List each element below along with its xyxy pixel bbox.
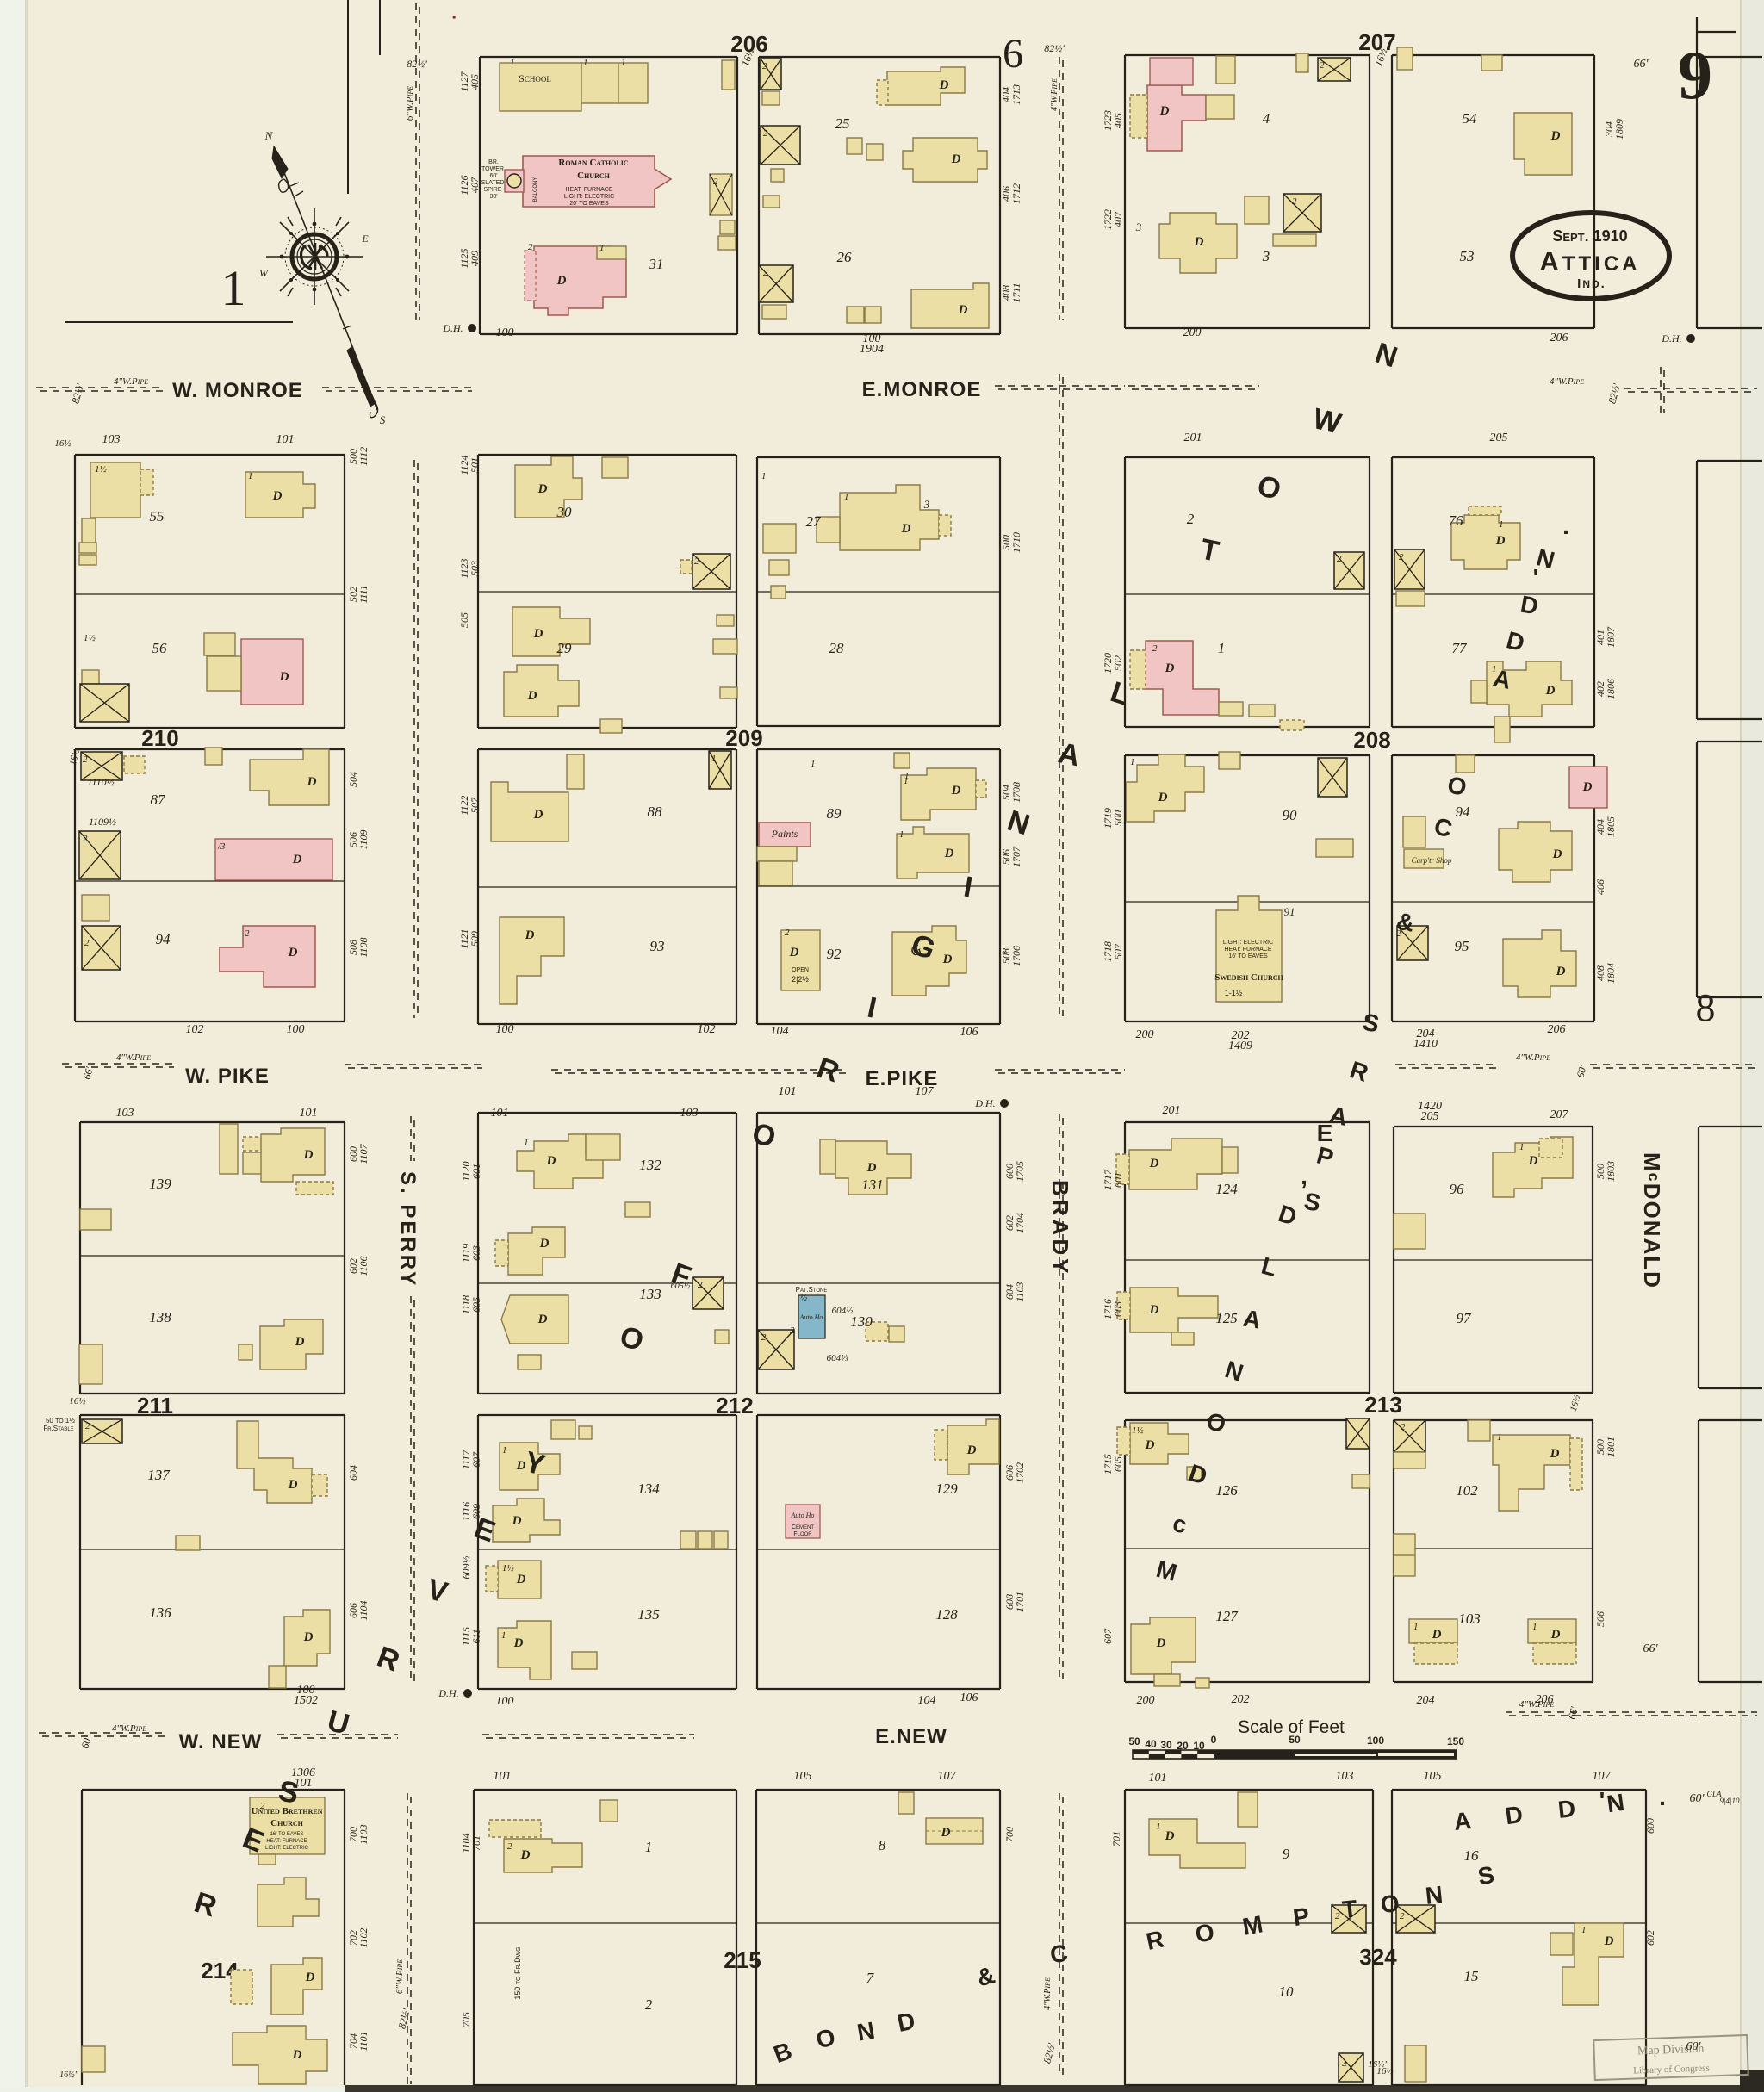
svg-text:D: D xyxy=(1149,1157,1159,1170)
svg-text:40: 40 xyxy=(1145,1738,1157,1750)
svg-text:D: D xyxy=(525,928,535,942)
svg-text:D: D xyxy=(279,670,289,684)
svg-text:D: D xyxy=(512,1514,522,1528)
svg-text:D: D xyxy=(789,946,799,959)
svg-text:1712: 1712 xyxy=(1010,183,1022,204)
svg-text:3: 3 xyxy=(1262,248,1270,264)
svg-text:D: D xyxy=(951,784,961,798)
svg-text:94: 94 xyxy=(1456,804,1471,820)
svg-text:701: 701 xyxy=(470,1835,482,1851)
svg-text:D: D xyxy=(288,946,298,959)
svg-text:95: 95 xyxy=(1455,938,1469,954)
svg-text:D: D xyxy=(292,853,302,866)
svg-text:87: 87 xyxy=(151,791,167,808)
svg-text:212: 212 xyxy=(716,1393,753,1418)
svg-text:130: 130 xyxy=(850,1313,873,1330)
svg-text:10: 10 xyxy=(1279,1983,1295,2000)
svg-text:206: 206 xyxy=(1550,332,1568,345)
svg-text:25: 25 xyxy=(835,115,850,132)
svg-text:1: 1 xyxy=(501,1630,506,1641)
svg-text:66': 66' xyxy=(1643,1642,1659,1655)
svg-text:E.MONROE: E.MONROE xyxy=(862,378,982,401)
svg-text:1: 1 xyxy=(1499,519,1504,530)
svg-text:6"W.PIPE: 6"W.PIPE xyxy=(394,1959,405,1994)
svg-text:W: W xyxy=(259,267,269,279)
svg-text:W. PIKE: W. PIKE xyxy=(185,1065,270,1088)
svg-text:1: 1 xyxy=(599,243,605,253)
svg-text:1410: 1410 xyxy=(1413,1038,1438,1051)
svg-text:205: 205 xyxy=(1490,431,1508,444)
svg-text:200: 200 xyxy=(1183,326,1202,339)
svg-text:HEAT: FURNACE: HEAT: FURNACE xyxy=(565,187,612,193)
svg-text:1706: 1706 xyxy=(1010,946,1022,966)
svg-text:609: 609 xyxy=(470,1504,482,1519)
svg-text:211: 211 xyxy=(137,1393,173,1418)
svg-text:4: 4 xyxy=(1263,110,1270,127)
svg-text:1804: 1804 xyxy=(1605,963,1617,984)
svg-text:406: 406 xyxy=(1594,879,1606,895)
svg-text:■: ■ xyxy=(452,16,456,21)
svg-text:2|2½: 2|2½ xyxy=(792,975,809,984)
svg-text:LIGHT: ELECTRIC: LIGHT: ELECTRIC xyxy=(265,1846,309,1851)
svg-text:W. NEW: W. NEW xyxy=(179,1730,263,1754)
svg-text:16' TO EAVES: 16' TO EAVES xyxy=(270,1832,304,1837)
svg-text:2: 2 xyxy=(698,1280,703,1290)
svg-text:1102: 1102 xyxy=(357,1927,370,1947)
svg-text:16½: 16½ xyxy=(54,438,71,449)
svg-text:1: 1 xyxy=(1218,640,1226,656)
svg-text:605: 605 xyxy=(1112,1456,1124,1472)
svg-text:1103: 1103 xyxy=(1014,1282,1026,1301)
svg-text:9|4|10: 9|4|10 xyxy=(1720,1797,1740,1805)
svg-text:77: 77 xyxy=(1452,640,1469,656)
svg-text:D: D xyxy=(1495,534,1506,548)
svg-text:1: 1 xyxy=(711,754,717,764)
svg-text:D: D xyxy=(303,1148,314,1162)
svg-text:1107: 1107 xyxy=(357,1143,370,1164)
svg-text:1: 1 xyxy=(844,492,849,502)
svg-text:82½': 82½' xyxy=(1044,42,1065,54)
svg-text:103: 103 xyxy=(102,433,121,446)
svg-text:2: 2 xyxy=(645,1996,653,2013)
svg-text:66': 66' xyxy=(1634,58,1649,71)
svg-text:76: 76 xyxy=(1449,512,1464,529)
svg-text:101: 101 xyxy=(300,1107,318,1120)
svg-text:1: 1 xyxy=(621,58,626,68)
svg-text:1805: 1805 xyxy=(1605,816,1617,837)
svg-text:60': 60' xyxy=(489,173,497,179)
svg-text:50: 50 xyxy=(1289,1734,1301,1746)
svg-text:29: 29 xyxy=(557,640,573,656)
svg-text:91: 91 xyxy=(1284,905,1295,918)
svg-text:N: N xyxy=(1424,1881,1444,1909)
svg-text:136: 136 xyxy=(149,1605,171,1621)
svg-text:1: 1 xyxy=(583,58,588,68)
svg-text:2: 2 xyxy=(260,1801,265,1811)
svg-text:26: 26 xyxy=(837,249,853,265)
svg-text:S: S xyxy=(380,413,386,426)
svg-text:55: 55 xyxy=(150,508,165,525)
svg-text:1: 1 xyxy=(502,1445,507,1456)
svg-text:100: 100 xyxy=(287,1023,305,1036)
svg-text:701: 701 xyxy=(1110,1831,1122,1847)
svg-text:4"W.PIPE: 4"W.PIPE xyxy=(114,376,148,387)
svg-text:2: 2 xyxy=(1292,196,1297,207)
svg-text:601: 601 xyxy=(470,1164,482,1179)
svg-text:1½: 1½ xyxy=(1132,1425,1144,1436)
svg-text:CHURCH: CHURCH xyxy=(270,1818,304,1828)
svg-text:102: 102 xyxy=(186,1023,204,1036)
svg-text:94: 94 xyxy=(156,931,171,947)
svg-text:D: D xyxy=(537,1313,548,1326)
svg-text:1111: 1111 xyxy=(357,585,370,603)
svg-text:2: 2 xyxy=(790,1325,795,1336)
svg-text:4"W.PIPE: 4"W.PIPE xyxy=(1519,1699,1554,1710)
svg-text:1801: 1801 xyxy=(1605,1437,1617,1457)
svg-text:31: 31 xyxy=(649,256,664,272)
svg-text:202: 202 xyxy=(1232,1693,1250,1706)
svg-text:16' TO EAVES: 16' TO EAVES xyxy=(1228,953,1268,959)
svg-text:405: 405 xyxy=(469,74,481,90)
svg-text:1109: 1109 xyxy=(357,829,370,849)
svg-text:16½": 16½" xyxy=(59,2070,79,2080)
svg-text:D: D xyxy=(1545,684,1556,698)
svg-text:210: 210 xyxy=(141,725,178,751)
svg-text:407: 407 xyxy=(469,177,481,193)
svg-text:D: D xyxy=(958,303,968,317)
svg-text:54: 54 xyxy=(1463,110,1478,127)
svg-text:602: 602 xyxy=(1644,1930,1656,1946)
svg-text:1: 1 xyxy=(811,759,816,769)
svg-text:138: 138 xyxy=(149,1309,171,1325)
svg-text:604: 604 xyxy=(347,1465,359,1481)
svg-text:1904: 1904 xyxy=(860,343,884,356)
svg-text:2: 2 xyxy=(1187,511,1195,527)
svg-text:503: 503 xyxy=(469,561,481,576)
svg-text:209: 209 xyxy=(725,725,762,751)
svg-text:107: 107 xyxy=(1593,1770,1612,1783)
svg-text:FLOOR: FLOOR xyxy=(793,1531,812,1537)
svg-text:LIGHT: ELECTRIC: LIGHT: ELECTRIC xyxy=(564,194,614,200)
svg-text:1112: 1112 xyxy=(357,447,370,466)
svg-text:2: 2 xyxy=(1337,554,1342,564)
svg-text:Auto Ho: Auto Ho xyxy=(799,1313,823,1321)
svg-text:215: 215 xyxy=(724,1947,761,1973)
svg-text:92: 92 xyxy=(827,946,842,962)
svg-text:56: 56 xyxy=(152,640,168,656)
svg-text:D: D xyxy=(866,1161,877,1175)
svg-text:2: 2 xyxy=(84,938,90,948)
svg-text:1½: 1½ xyxy=(84,633,96,643)
svg-text:107: 107 xyxy=(938,1770,957,1783)
svg-text:1: 1 xyxy=(1130,757,1135,767)
svg-text:HEAT: FURNACE: HEAT: FURNACE xyxy=(266,1839,307,1844)
svg-text:200: 200 xyxy=(1137,1694,1155,1707)
svg-text:201: 201 xyxy=(1184,431,1202,444)
svg-text:102: 102 xyxy=(1456,1482,1478,1499)
svg-text:1809: 1809 xyxy=(1613,119,1625,140)
svg-text:1: 1 xyxy=(899,829,904,840)
svg-text:1: 1 xyxy=(1413,1622,1419,1632)
svg-text:.: . xyxy=(1562,512,1569,539)
svg-text:88: 88 xyxy=(648,804,663,820)
svg-text:137: 137 xyxy=(147,1467,171,1483)
svg-text:D: D xyxy=(1504,1801,1525,1830)
svg-text:504: 504 xyxy=(347,772,359,787)
svg-text:206: 206 xyxy=(1548,1023,1566,1036)
svg-text:D: D xyxy=(288,1478,298,1492)
svg-text:101: 101 xyxy=(276,433,295,446)
svg-text:82½': 82½' xyxy=(407,58,427,70)
svg-text:D: D xyxy=(513,1636,524,1650)
svg-text:30': 30' xyxy=(489,194,497,200)
svg-text:506: 506 xyxy=(1594,1611,1606,1627)
svg-text:.: . xyxy=(1659,1784,1666,1810)
svg-text:2: 2 xyxy=(761,1332,767,1343)
svg-text:Paints: Paints xyxy=(771,828,798,840)
svg-text:D: D xyxy=(1604,1934,1614,1948)
svg-text:60': 60' xyxy=(1690,1792,1705,1805)
svg-text:D: D xyxy=(305,1971,315,1984)
svg-text:1704: 1704 xyxy=(1014,1213,1026,1233)
svg-text:100: 100 xyxy=(1367,1735,1384,1747)
svg-text:2: 2 xyxy=(1399,552,1404,562)
svg-text:603: 603 xyxy=(470,1245,482,1261)
svg-text:2: 2 xyxy=(83,754,88,765)
svg-text:601: 601 xyxy=(1112,1172,1124,1188)
svg-text:D.H.: D.H. xyxy=(438,1687,458,1699)
svg-text:205: 205 xyxy=(1421,1110,1439,1123)
svg-text:30: 30 xyxy=(556,504,573,520)
svg-text:150: 150 xyxy=(1447,1735,1464,1747)
svg-text:BRADY: BRADY xyxy=(1047,1180,1073,1276)
svg-text:D: D xyxy=(951,152,961,166)
svg-text:104: 104 xyxy=(771,1025,789,1038)
svg-text:97: 97 xyxy=(1457,1310,1473,1326)
svg-text:4"W.PIPE: 4"W.PIPE xyxy=(1550,376,1584,387)
svg-text:D: D xyxy=(527,689,537,703)
svg-text:107: 107 xyxy=(916,1085,935,1098)
svg-text:8: 8 xyxy=(1696,985,1716,1029)
svg-text:1: 1 xyxy=(524,1138,529,1148)
svg-text:N: N xyxy=(1606,1789,1626,1818)
svg-text:101: 101 xyxy=(295,1777,313,1790)
svg-text:1-1½: 1-1½ xyxy=(1225,989,1243,997)
svg-text:2: 2 xyxy=(507,1841,512,1852)
svg-text:D: D xyxy=(1165,1829,1175,1843)
svg-text:D: D xyxy=(1552,847,1562,861)
svg-text:1109½: 1109½ xyxy=(89,816,116,828)
svg-text:D: D xyxy=(537,482,548,496)
svg-text:9: 9 xyxy=(1678,38,1712,114)
svg-text:405: 405 xyxy=(1112,113,1124,128)
svg-text:16½": 16½" xyxy=(1368,2059,1388,2070)
svg-text:132: 132 xyxy=(639,1157,661,1173)
svg-text:D: D xyxy=(272,489,283,503)
svg-text:100: 100 xyxy=(496,1695,514,1708)
svg-text:2: 2 xyxy=(763,268,768,278)
svg-text:60': 60' xyxy=(1686,2040,1702,2053)
svg-text:4"W.PIPE: 4"W.PIPE xyxy=(116,1052,151,1063)
svg-text:BR.: BR. xyxy=(488,159,499,165)
svg-text:607: 607 xyxy=(1102,1628,1114,1644)
svg-text:D: D xyxy=(303,1630,314,1644)
svg-text:1707: 1707 xyxy=(1010,846,1022,867)
svg-text:D: D xyxy=(939,78,949,92)
svg-text:2: 2 xyxy=(1320,60,1325,71)
svg-text:1: 1 xyxy=(221,260,246,316)
svg-text:S. PERRY: S. PERRY xyxy=(396,1171,419,1288)
svg-text:103: 103 xyxy=(1458,1611,1481,1627)
svg-text:106: 106 xyxy=(960,1026,978,1039)
svg-text:1110½: 1110½ xyxy=(87,776,114,788)
svg-text:2: 2 xyxy=(1152,643,1158,654)
svg-text:': ' xyxy=(1599,1787,1606,1814)
svg-text:103: 103 xyxy=(116,1107,134,1120)
svg-text:1101: 1101 xyxy=(357,2031,370,2051)
svg-text:W. MONROE: W. MONROE xyxy=(172,379,303,402)
svg-text:1: 1 xyxy=(1497,1432,1502,1443)
svg-text:D: D xyxy=(1556,965,1566,978)
svg-text:BALCONY: BALCONY xyxy=(533,177,538,202)
svg-text:D: D xyxy=(1156,1636,1166,1650)
svg-text:139: 139 xyxy=(149,1176,171,1192)
svg-text:2: 2 xyxy=(83,834,88,844)
svg-text:LIGHT: ELECTRIC: LIGHT: ELECTRIC xyxy=(1223,940,1273,946)
svg-text:100: 100 xyxy=(496,1023,514,1036)
svg-text:D: D xyxy=(1556,1795,1576,1823)
svg-text:D: D xyxy=(556,274,567,288)
svg-text:93: 93 xyxy=(650,938,665,954)
svg-text:4"W.PIPE: 4"W.PIPE xyxy=(1516,1052,1550,1063)
svg-text:604⅓: 604⅓ xyxy=(827,1353,849,1363)
svg-text:4"W.PIPE: 4"W.PIPE xyxy=(1043,1977,1053,2010)
svg-text:102: 102 xyxy=(698,1023,716,1036)
svg-text:N: N xyxy=(264,129,274,142)
svg-text:324: 324 xyxy=(1359,1944,1397,1970)
svg-text:D: D xyxy=(1158,791,1168,804)
svg-text:6"W.PIPE: 6"W.PIPE xyxy=(405,86,415,121)
svg-text:O: O xyxy=(1194,1919,1216,1948)
svg-text:2: 2 xyxy=(1401,1422,1406,1432)
svg-text:D: D xyxy=(533,808,543,822)
svg-text:1701: 1701 xyxy=(1014,1592,1026,1612)
svg-text:O: O xyxy=(1379,1890,1401,1919)
svg-text:28: 28 xyxy=(829,640,845,656)
svg-text:CHURCH: CHURCH xyxy=(577,171,611,181)
svg-text:600: 600 xyxy=(1644,1818,1656,1834)
svg-text:1708: 1708 xyxy=(1010,782,1022,803)
svg-text:8: 8 xyxy=(879,1837,886,1853)
svg-text:D: D xyxy=(1165,661,1175,675)
svg-text:1710: 1710 xyxy=(1010,532,1022,553)
svg-text:D: D xyxy=(1159,104,1170,118)
svg-text:D: D xyxy=(1528,1154,1538,1168)
svg-text:SCHOOL: SCHOOL xyxy=(519,72,551,84)
svg-text:16½: 16½ xyxy=(69,1396,85,1406)
svg-text:ROMAN CATHOLIC: ROMAN CATHOLIC xyxy=(558,158,628,168)
svg-text:1: 1 xyxy=(904,776,909,786)
svg-text:2: 2 xyxy=(785,928,790,938)
svg-text:129: 129 xyxy=(935,1481,958,1497)
svg-text:103: 103 xyxy=(1336,1770,1354,1783)
svg-text:603: 603 xyxy=(1112,1301,1124,1317)
svg-text:106: 106 xyxy=(960,1692,978,1704)
svg-text:4"W.PIPE: 4"W.PIPE xyxy=(112,1723,146,1734)
svg-text:2: 2 xyxy=(1335,1911,1340,1921)
svg-text:700: 700 xyxy=(1003,1827,1016,1842)
svg-text:2: 2 xyxy=(713,177,718,187)
svg-text:1705: 1705 xyxy=(1014,1161,1026,1182)
svg-text:D: D xyxy=(520,1848,531,1862)
svg-text:101: 101 xyxy=(1149,1772,1167,1785)
svg-text:SLATED: SLATED xyxy=(481,180,505,186)
svg-text:,: , xyxy=(1301,1163,1307,1189)
svg-text:2: 2 xyxy=(85,1421,90,1431)
svg-text:15: 15 xyxy=(1464,1968,1479,1984)
svg-text:16: 16 xyxy=(1464,1847,1480,1864)
svg-text:D.H.: D.H. xyxy=(974,1097,995,1109)
svg-text:A: A xyxy=(1452,1807,1472,1835)
svg-text:1106: 1106 xyxy=(357,1256,370,1276)
svg-text:D: D xyxy=(901,522,911,536)
svg-text:53: 53 xyxy=(1460,248,1475,264)
svg-text:0: 0 xyxy=(1211,1734,1217,1746)
svg-text:500: 500 xyxy=(1112,810,1124,826)
svg-text:124: 124 xyxy=(1215,1181,1238,1197)
svg-text:D: D xyxy=(307,775,317,789)
svg-text:101: 101 xyxy=(491,1107,509,1120)
svg-text:D: D xyxy=(1550,1447,1560,1461)
svg-text:407: 407 xyxy=(1112,211,1124,227)
svg-text:90: 90 xyxy=(1283,807,1298,823)
svg-text:D: D xyxy=(292,2048,302,2062)
svg-text:CEMENT: CEMENT xyxy=(792,1524,814,1530)
svg-text:9: 9 xyxy=(1283,1846,1290,1862)
svg-text:131: 131 xyxy=(861,1176,884,1193)
svg-text:127: 127 xyxy=(1215,1608,1239,1624)
svg-text:1: 1 xyxy=(1156,1822,1161,1832)
svg-text:1: 1 xyxy=(1519,1142,1525,1152)
svg-text:104: 104 xyxy=(918,1694,936,1707)
svg-text:2: 2 xyxy=(694,556,699,567)
svg-text:1: 1 xyxy=(510,58,515,68)
svg-text:507: 507 xyxy=(1112,943,1124,959)
svg-text:1702: 1702 xyxy=(1014,1462,1026,1483)
svg-text:1502: 1502 xyxy=(294,1694,318,1707)
svg-text:D: D xyxy=(1550,129,1561,143)
svg-text:204: 204 xyxy=(1417,1694,1435,1707)
svg-text:D: D xyxy=(1582,780,1593,794)
svg-text:T: T xyxy=(1341,1895,1358,1923)
svg-text:208: 208 xyxy=(1353,727,1390,753)
svg-text:D: D xyxy=(533,627,543,641)
svg-text:605: 605 xyxy=(470,1297,482,1313)
svg-text:1: 1 xyxy=(1532,1622,1537,1632)
svg-text:D: D xyxy=(546,1154,556,1168)
svg-text:611: 611 xyxy=(470,1629,482,1643)
svg-text:TOWER: TOWER xyxy=(481,166,504,172)
svg-text:1: 1 xyxy=(248,471,253,481)
svg-text:501: 501 xyxy=(469,457,481,473)
svg-text:2: 2 xyxy=(528,242,533,252)
svg-text:D: D xyxy=(1550,1628,1561,1642)
svg-text:½: ½ xyxy=(800,1293,807,1303)
svg-text:D: D xyxy=(1432,1628,1442,1642)
svg-text:507: 507 xyxy=(469,797,481,813)
svg-text:E.NEW: E.NEW xyxy=(875,1725,947,1748)
svg-text:705: 705 xyxy=(460,2012,472,2027)
